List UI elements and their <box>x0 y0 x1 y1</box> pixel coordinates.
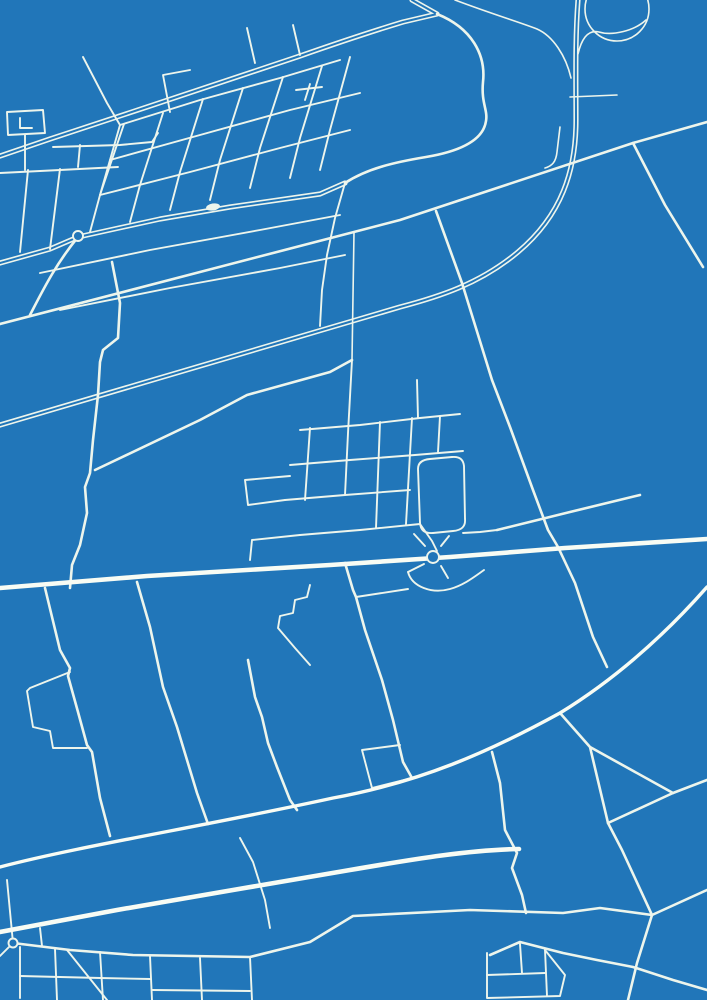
roundabout-interchange <box>427 551 439 563</box>
roundabout-south <box>9 939 18 948</box>
map-poster <box>0 0 707 1000</box>
road-cluster-col-6 <box>417 380 418 418</box>
map-background <box>0 0 707 1000</box>
map-canvas <box>0 0 707 1000</box>
roundabout-town-west <box>73 231 83 241</box>
road-southtown-row-2 <box>152 990 250 991</box>
